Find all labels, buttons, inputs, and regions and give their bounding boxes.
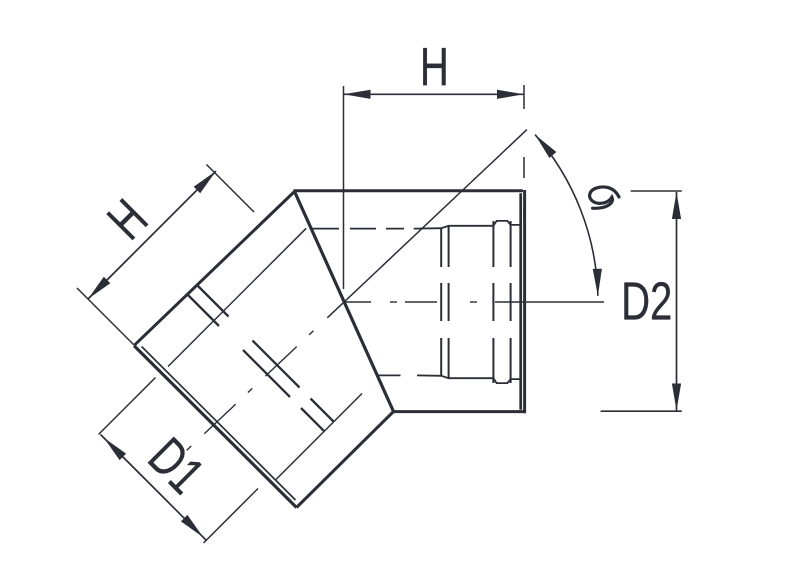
svg-text:D2: D2 <box>621 272 672 332</box>
svg-text:D1: D1 <box>137 427 216 506</box>
svg-text:H: H <box>420 37 449 97</box>
svg-text:H: H <box>97 188 160 251</box>
